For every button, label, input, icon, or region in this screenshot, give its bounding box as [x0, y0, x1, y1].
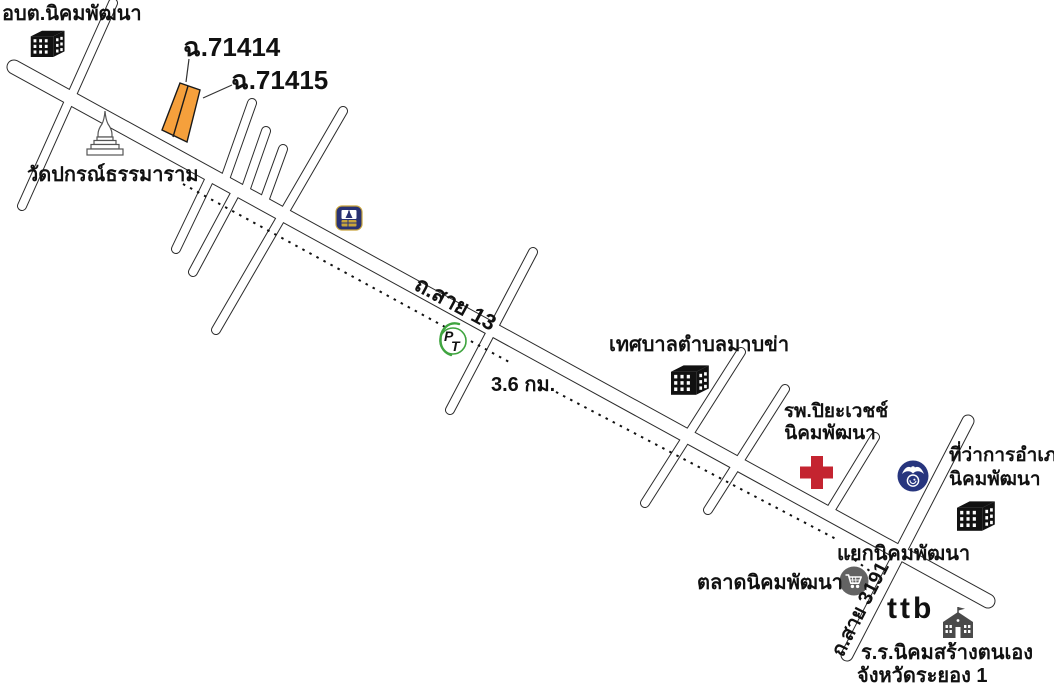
map-drawing: P T — [0, 0, 1054, 692]
label-junction: แยกนิคมพัฒนา — [837, 543, 970, 565]
road-stub-6 — [828, 437, 875, 514]
label-road-sai-13: ถ.สาย 13 — [411, 271, 501, 335]
label-school-line2: จังหวัดระยอง 1 — [857, 665, 988, 687]
label-subdistrict-office: อบต.นิคมพัฒนา — [2, 3, 142, 25]
label-parcel-71414: ฉ.71414 — [183, 32, 281, 62]
ttb-letter-t2: t — [900, 592, 910, 625]
ttb-letter-t1: t — [887, 592, 897, 625]
municipality-building-icon — [671, 365, 709, 394]
school-icon — [943, 607, 973, 638]
road-stub-2 — [244, 131, 266, 194]
subdistrict-office-building-icon — [31, 31, 65, 57]
road-sai-13 — [14, 67, 988, 601]
map-canvas: P T — [0, 0, 1054, 692]
label-municipality: เทศบาลตำบลมาบข่า — [609, 334, 789, 356]
pt-gas-station-icon: P T — [440, 323, 466, 355]
label-school-line1: ร.ร.นิคมสร้างตนเอง — [861, 641, 1033, 664]
label-temple: วัดปกรณ์ธรรมาราม — [27, 163, 199, 186]
ttb-bank-logo: t t b — [887, 592, 931, 625]
bangkok-bank-logo-icon — [336, 206, 362, 230]
ttb-letter-b: b — [913, 592, 931, 625]
label-hospital-line2: นิคมพัฒนา — [784, 423, 876, 444]
district-office-building-icon — [957, 501, 995, 530]
road-stub-3 — [263, 149, 283, 204]
label-distance: 3.6 กม. — [491, 374, 555, 396]
hospital-cross-icon — [800, 456, 833, 489]
pt-letter-t: T — [451, 338, 461, 354]
label-district-office-line2: นิคมพัฒนา — [949, 469, 1041, 490]
land-parcel — [162, 83, 200, 142]
label-hospital-line1: รพ.ปิยะเวชช์ — [784, 400, 888, 422]
road-stub-4 — [176, 178, 210, 249]
label-district-office-line1: ที่ว่าการอำเภอ — [949, 441, 1054, 466]
label-parcel-71415: ฉ.71415 — [231, 65, 328, 95]
district-office-seal-icon — [898, 461, 929, 492]
label-market: ตลาดนิคมพัฒนา — [697, 572, 843, 594]
